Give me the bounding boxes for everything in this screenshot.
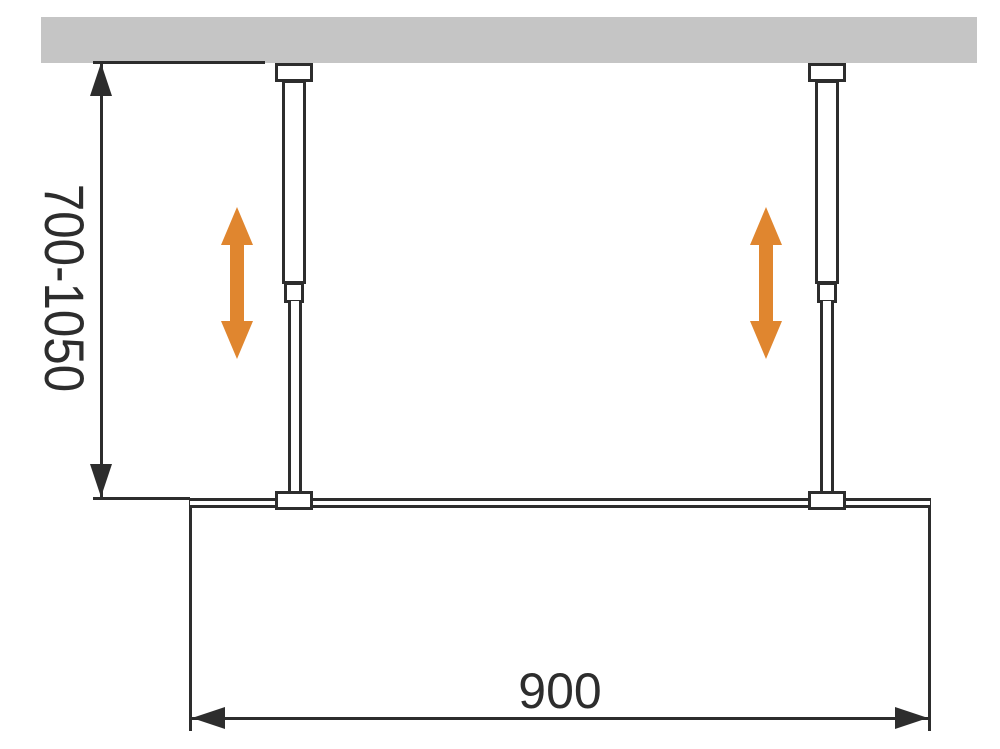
glass-panel-left-edge [189, 498, 192, 731]
left-rod-glass-clamp [275, 491, 313, 510]
vertical-adjust-arrow-icon [750, 207, 782, 359]
arrow-head-up [750, 207, 782, 245]
left-rod-ceiling-bracket [275, 63, 313, 82]
left-rod-lower-rod [288, 301, 302, 493]
right-rod-lower-rod [820, 301, 834, 493]
arrow-head-down [221, 321, 253, 359]
arrow-head-up [221, 207, 253, 245]
dimension-arrow-right-icon [895, 707, 928, 729]
left-rod-upper-tube [282, 80, 306, 284]
vertical-adjust-arrow-icon [221, 207, 253, 359]
height-dimension-label: 700-1050 [36, 184, 92, 392]
right-rod-adjust-collar [817, 282, 837, 303]
ceiling-band [41, 17, 977, 63]
extension-line-glass-top [93, 497, 190, 500]
glass-panel-right-edge [928, 498, 931, 731]
dimension-arrow-down-icon [90, 464, 112, 497]
dimension-arrow-left-icon [192, 707, 225, 729]
dimension-arrow-up-icon [90, 63, 112, 96]
arrow-head-down [750, 321, 782, 359]
width-dimension-label: 900 [518, 666, 601, 716]
extension-line-ceiling [93, 61, 265, 64]
right-rod-ceiling-bracket [808, 63, 846, 82]
arrow-shaft [759, 245, 773, 321]
arrow-shaft [230, 245, 244, 321]
height-dimension-line [100, 63, 103, 497]
left-rod-adjust-collar [284, 282, 304, 303]
right-rod-glass-clamp [808, 491, 846, 510]
right-rod-upper-tube [815, 80, 839, 284]
installation-diagram: 700-1050 900 [0, 0, 1000, 749]
